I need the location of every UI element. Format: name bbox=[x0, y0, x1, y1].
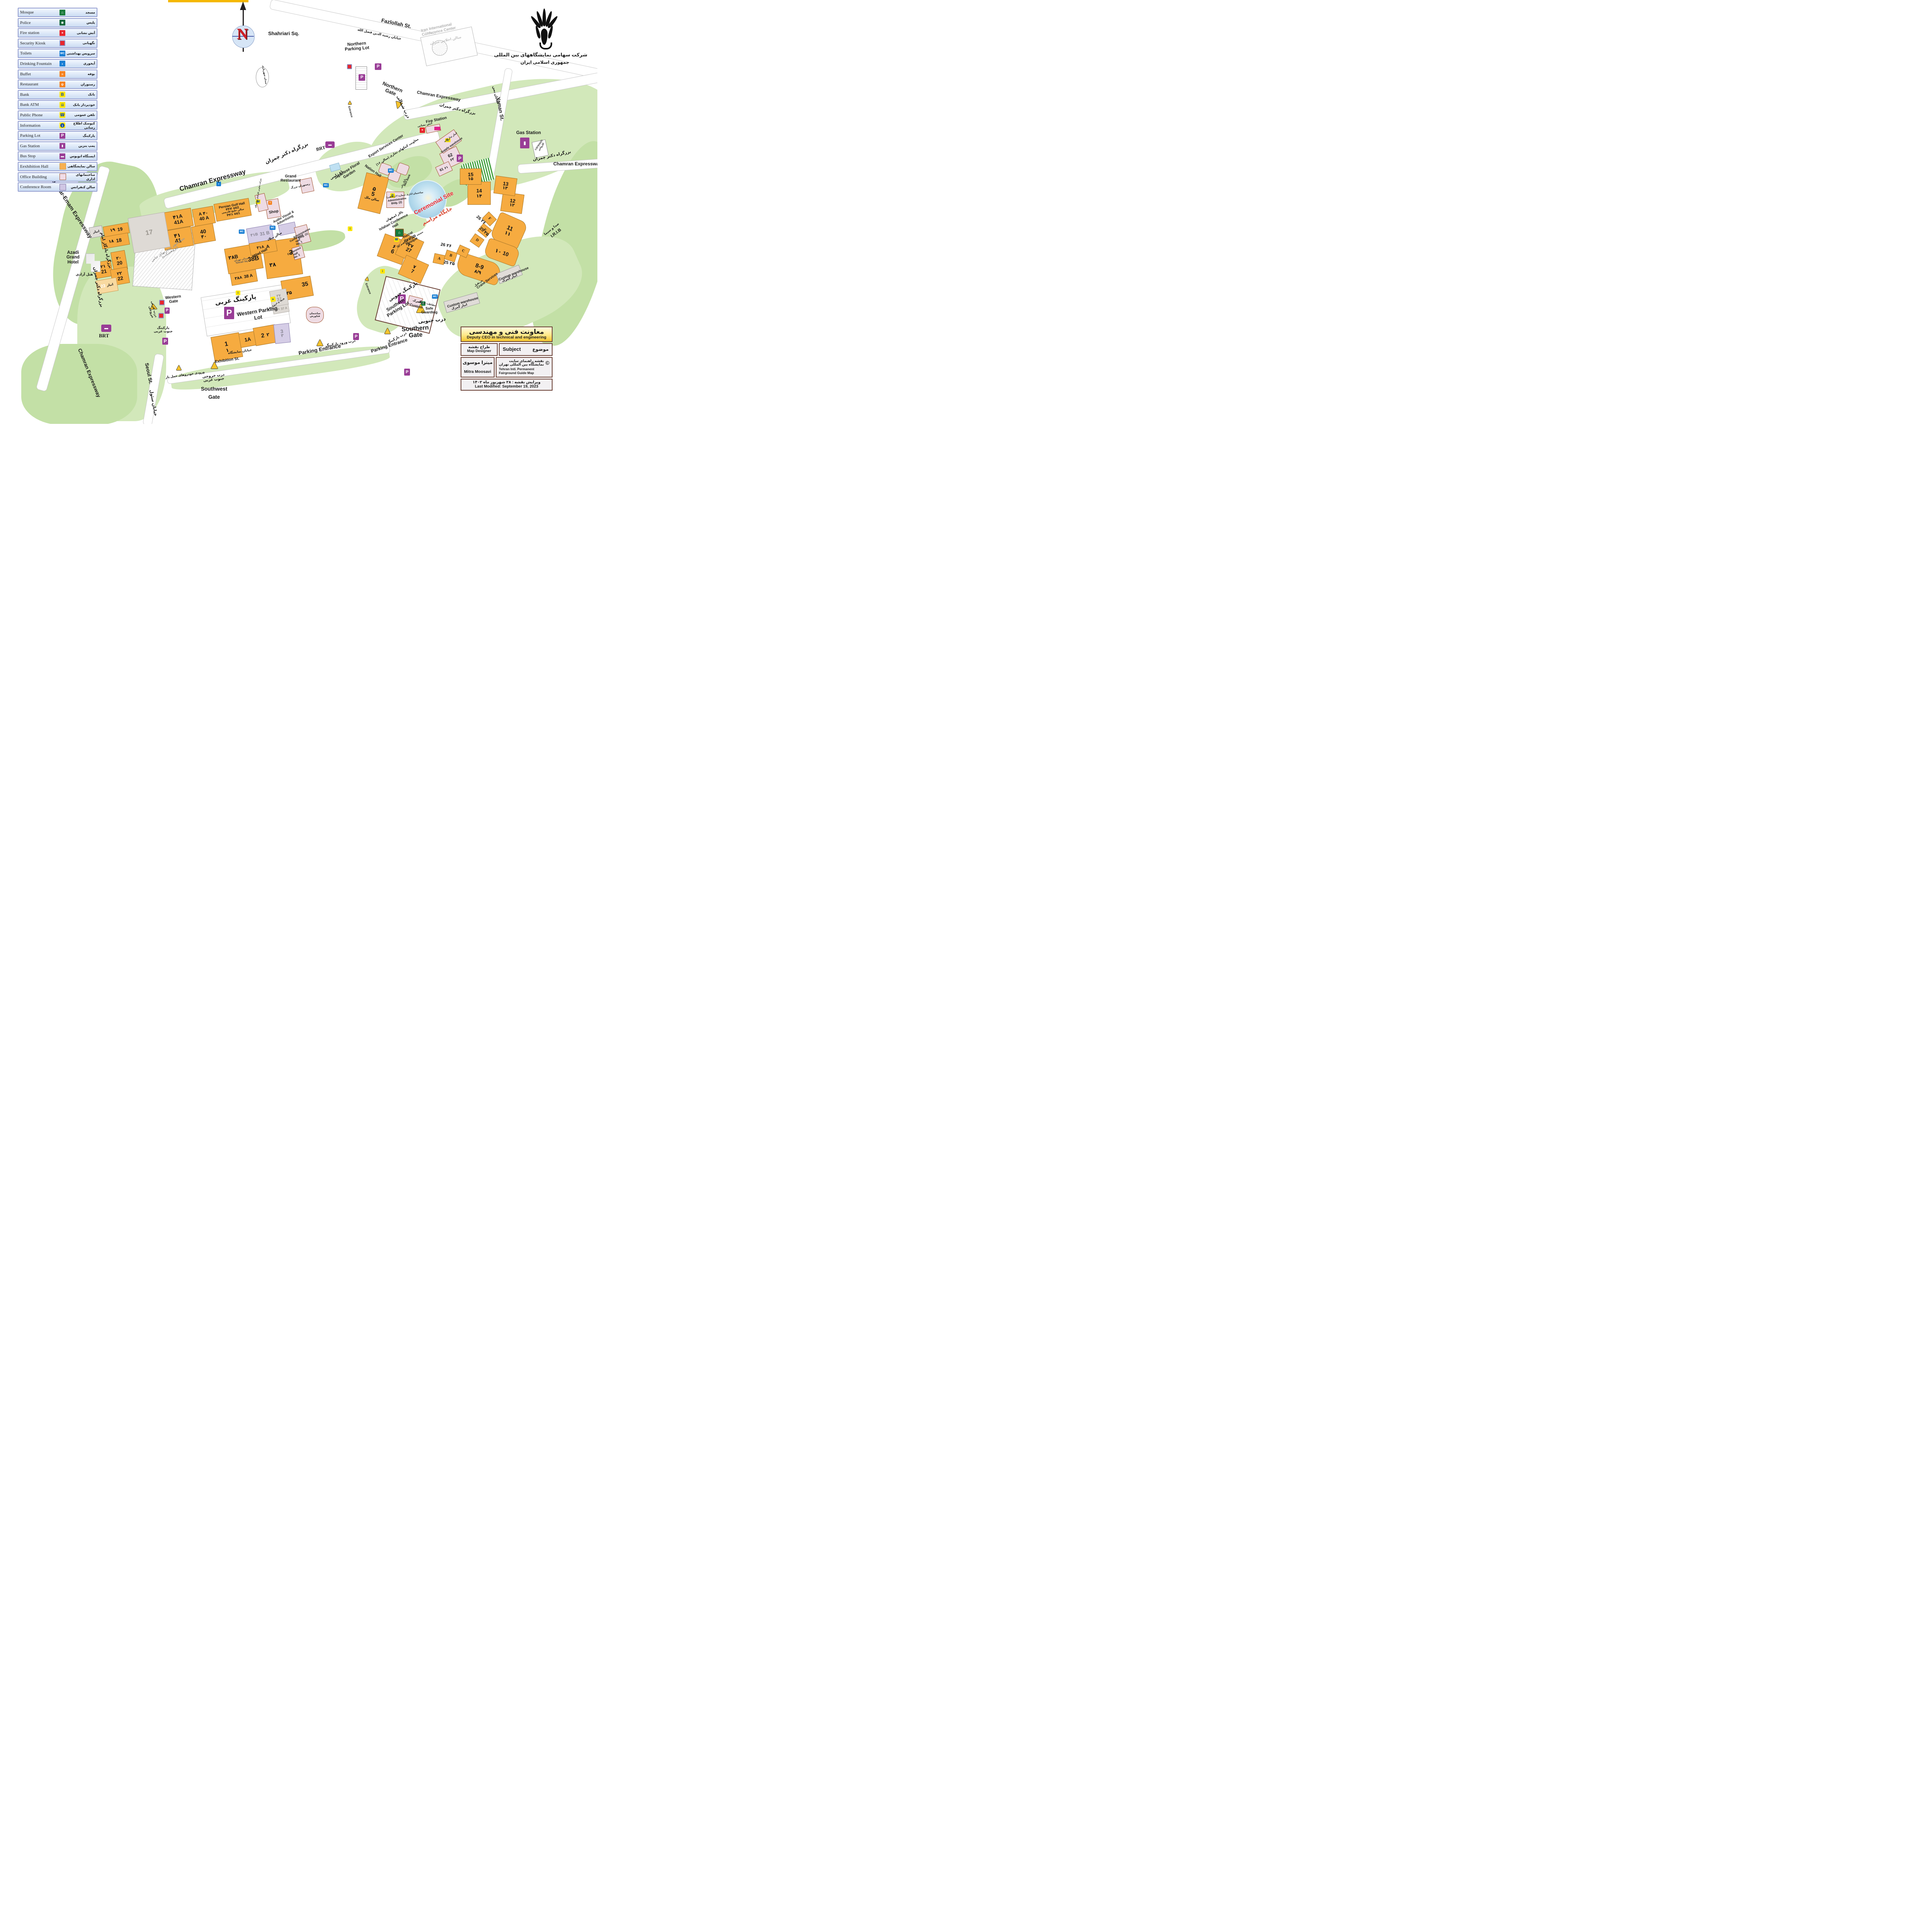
chamran-expwy-fa-upperleft: بزرگراه دکتر چمران bbox=[264, 141, 309, 165]
info-box-designer-head: طراح نقشه Map Designer bbox=[461, 343, 498, 356]
mosque-icon: ⌂ bbox=[60, 10, 65, 15]
northern-parking-label: NorthernParking Lot bbox=[344, 41, 369, 52]
toilets-icon: WC bbox=[270, 226, 276, 230]
toilets-icon: WC bbox=[60, 51, 65, 56]
gas-station-icon: ▮ bbox=[520, 138, 529, 148]
legend-panel: Mosque⌂مسجد Police◉پلیس Fire station✶آتش… bbox=[18, 8, 97, 193]
legend-item-bus-stop: Bus Stop▬ایستگاه اتوبوس bbox=[18, 151, 97, 161]
information-icon: i bbox=[60, 122, 65, 128]
company-name-line2: جمهوری اسلامی ایران bbox=[502, 60, 587, 65]
legend-item-bank: BankBبانک bbox=[18, 90, 97, 99]
compass: N bbox=[230, 2, 257, 56]
parking-icon: P bbox=[359, 74, 365, 81]
grand-restaurant-label: GrandRestaurant bbox=[281, 175, 301, 183]
info-box-designer-name: میترا موسوی Mitra Moosavi bbox=[461, 357, 495, 378]
drinking-fountain-icon: ◗ bbox=[60, 61, 65, 66]
hall-40: 40۴۰ bbox=[191, 223, 216, 244]
western-gate-label: WesternGate bbox=[165, 294, 182, 305]
bus-stop-icon: ▬ bbox=[60, 153, 65, 159]
parking-icon: P bbox=[162, 338, 168, 345]
azadi-hotel-fa: هتل آزادی bbox=[76, 273, 93, 277]
hall-13: 13۱۳ bbox=[493, 175, 517, 196]
legend-item-exhibition-hall: Eexhibition Hallسالن نمایشگاهی bbox=[18, 162, 97, 171]
toilets-icon: WC bbox=[239, 230, 245, 234]
arc-25-label-west: 25 ۲۵ bbox=[443, 260, 455, 267]
legend-item-security-kiosk: Security Kioskنگهبانی bbox=[18, 39, 97, 48]
fire-station-icon: ✶ bbox=[60, 30, 65, 36]
pedestrian-icon: ➤ bbox=[270, 296, 276, 302]
copyright-mark: © bbox=[546, 360, 549, 366]
public-phone-icon: ☎ bbox=[60, 112, 65, 118]
legend-item-public-phone: Public Phone☎تلفن عمومی bbox=[18, 111, 97, 120]
legend-item-drinking-fountain: Drinking Fountain◗آبخوری bbox=[18, 59, 97, 68]
hall-14: 14۱۴ bbox=[468, 182, 491, 205]
parking-icon: P bbox=[165, 308, 170, 314]
legend-item-gas-station: Gas Station▮پمپ بنزین bbox=[18, 141, 97, 151]
toilets-icon: WC bbox=[323, 183, 329, 187]
compass-n: N bbox=[237, 26, 248, 42]
parking-icon: P bbox=[224, 307, 234, 319]
parking-entrance-south-triangle: ▲ bbox=[383, 325, 393, 335]
legend-item-restaurant: Restaurantψرستوران bbox=[18, 80, 97, 89]
hall-3: 3۳ bbox=[273, 323, 291, 344]
information-icon: i bbox=[380, 269, 385, 274]
police-icon: ◉ bbox=[60, 20, 65, 26]
bus-stop-icon: ▬ bbox=[325, 141, 335, 148]
arc-26-label-west: 26 ۲۶ bbox=[440, 243, 452, 249]
info-box: معاونت فنی و مهندسی Deputy CEO in techni… bbox=[461, 327, 553, 391]
security-kiosk-icon bbox=[60, 40, 65, 46]
north-entrance-label: Entrance bbox=[347, 106, 353, 118]
company-name-line1: شرکت سهامی نمایشگاههای بین المللی bbox=[502, 53, 587, 58]
restaurant-icon: ψ bbox=[60, 82, 65, 87]
legend-item-fire-station: Fire station✶آتش نشانی bbox=[18, 28, 97, 37]
gas-station-icon: ▮ bbox=[60, 143, 65, 149]
legend-item-conference-room: Conference Roomسالن کنفرانس bbox=[18, 182, 97, 192]
brt-label-upper: BRT bbox=[316, 145, 326, 152]
compass-arrowhead bbox=[240, 2, 246, 10]
hall-D: D bbox=[469, 233, 484, 248]
cargo-entrance-triangle: ▲ bbox=[175, 363, 183, 372]
shahriari-square-label: Shahriari Sq. bbox=[268, 31, 299, 36]
info-box-modified: ویرایش نقشه : ۲۸ شهریور ماه ۱۴۰۲ Last Mo… bbox=[461, 379, 553, 391]
info-box-title: معاونت فنی و مهندسی Deputy CEO in techni… bbox=[461, 327, 553, 342]
buffet-icon: ≡ bbox=[60, 71, 65, 77]
north-entrance-triangle: ▲ bbox=[347, 100, 353, 105]
gas-station-label: Gas Station bbox=[516, 131, 541, 135]
security-kiosk-icon bbox=[158, 313, 164, 318]
southwest-gate-label: SouthwestGate bbox=[201, 386, 227, 400]
legend-item-bank-atm: Bank ATM▤خودپرداز بانک bbox=[18, 100, 97, 109]
toilets-icon: WC bbox=[388, 168, 394, 173]
public-phone-icon: ☎ bbox=[394, 237, 399, 242]
office-building-swatch bbox=[60, 173, 66, 180]
clinic-tag bbox=[434, 127, 440, 130]
security-kiosk-icon bbox=[347, 64, 352, 69]
conference-room-swatch bbox=[60, 184, 66, 190]
legend-item-parking-lot: Parking LotPپارکینگ bbox=[18, 131, 97, 140]
hall-15: 15۱۵ bbox=[460, 168, 481, 185]
hall-17: 17 bbox=[128, 212, 171, 253]
legend-item-mosque: Mosque⌂مسجد bbox=[18, 8, 97, 17]
info-box-subject-value: نقشه راهنمای سایتنمایشگاه بین المللی تهر… bbox=[496, 357, 553, 378]
parking-icon: P bbox=[404, 369, 410, 376]
parking-icon: P bbox=[375, 63, 381, 70]
bus-stop-icon: ▬ bbox=[101, 325, 111, 332]
parking-icon: P bbox=[60, 133, 65, 139]
fanavaresh-building: ساختمان فناورش bbox=[306, 307, 324, 323]
company-logo bbox=[532, 9, 556, 50]
information-icon: i bbox=[348, 226, 352, 231]
legend-item-buffet: Buffet≡بوفه bbox=[18, 70, 97, 79]
bank-icon: B bbox=[60, 92, 65, 97]
exhibition-hall-swatch bbox=[60, 163, 66, 170]
fire-station-icon: ✶ bbox=[420, 128, 425, 133]
southwest-parking-fa: پارکینگجنوب غربی bbox=[154, 326, 173, 333]
fairground-guide-map: بنیاد امور بیماریهای خاص(پژوهشکده) Mosqu… bbox=[0, 0, 597, 424]
legend-item-police: Police◉پلیس bbox=[18, 18, 97, 27]
info-box-subject-head: Subject موضوع bbox=[499, 343, 553, 356]
legend-item-toilets: ToiletsWCسرویس بهداشتی bbox=[18, 49, 97, 58]
parking-icon: P bbox=[457, 155, 463, 162]
legend-item-information: Informationiکیوسک اطلاع رسانی bbox=[18, 121, 97, 130]
toilets-icon: WC bbox=[432, 294, 438, 299]
information-icon: i bbox=[236, 291, 240, 295]
bank-atm-icon: ▤ bbox=[60, 102, 65, 108]
brt-label-left: BRT bbox=[99, 333, 109, 338]
azadi-hotel-label: AzadiGrandHotel bbox=[66, 250, 80, 265]
safe-guarding-label: SafeGuarding bbox=[421, 307, 437, 315]
security-kiosk-icon bbox=[159, 300, 165, 305]
buffet-icon: ≡ bbox=[268, 201, 272, 205]
chamran-expwy-label-right: Chamran Expressway bbox=[553, 162, 597, 167]
legend-item-office-building: Office Buildingساختمانهای اداری bbox=[18, 172, 97, 182]
southern-parking-entrance-triangle: ▲ bbox=[364, 276, 371, 283]
